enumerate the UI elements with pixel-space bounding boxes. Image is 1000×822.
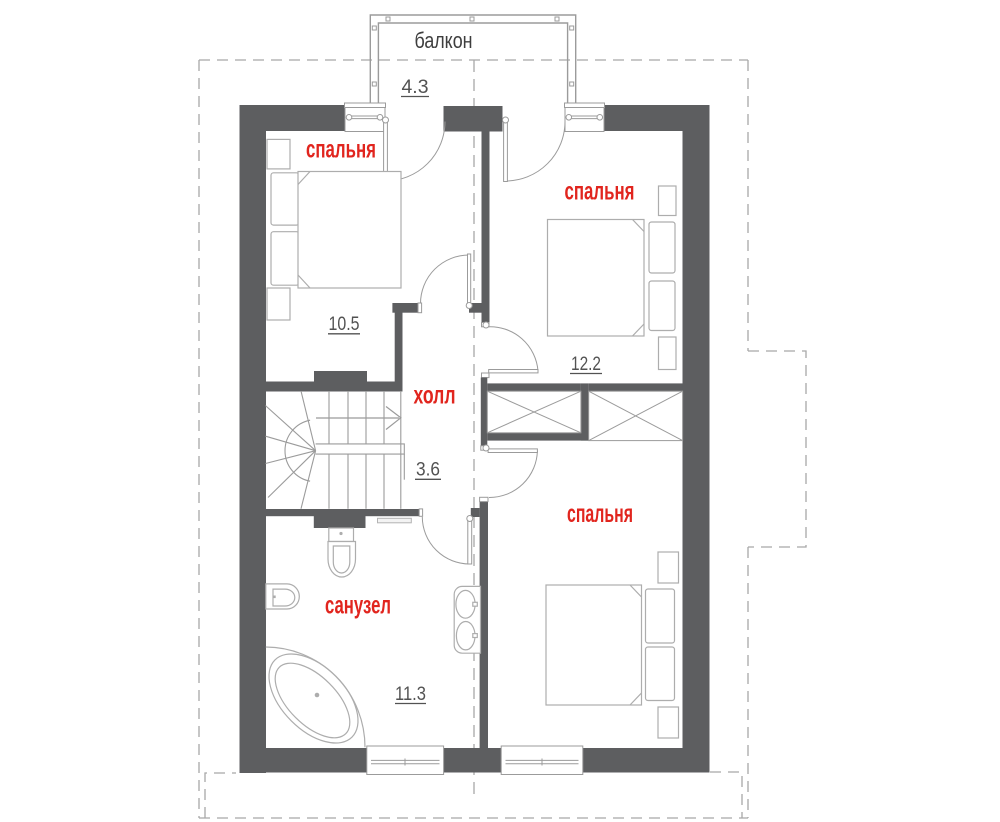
svg-text:4.3: 4.3 (402, 77, 429, 98)
svg-text:спальня: спальня (567, 500, 633, 528)
svg-text:10.5: 10.5 (329, 314, 360, 335)
svg-text:3.6: 3.6 (416, 460, 440, 481)
svg-text:балкон: балкон (415, 28, 473, 53)
svg-text:спальня: спальня (565, 178, 635, 206)
svg-text:11.3: 11.3 (395, 684, 426, 705)
svg-text:холл: холл (414, 382, 456, 410)
svg-text:спальня: спальня (306, 136, 376, 164)
svg-text:12.2: 12.2 (571, 354, 601, 375)
svg-text:санузел: санузел (325, 592, 391, 620)
